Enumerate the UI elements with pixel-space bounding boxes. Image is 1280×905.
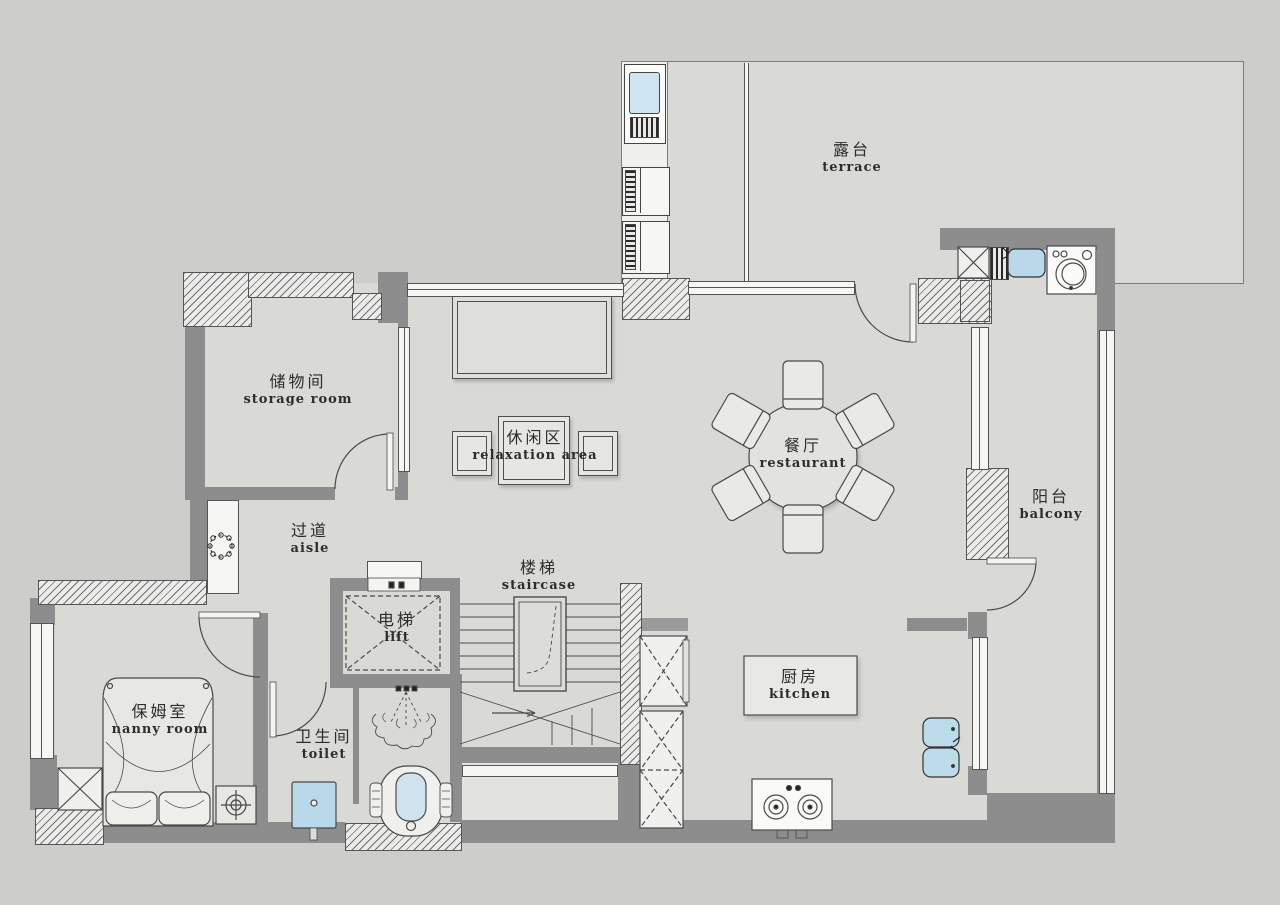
label-terrace-en: terrace — [822, 159, 882, 176]
label-restaurant: 餐厅 restaurant — [759, 436, 846, 472]
label-nanny-zh: 保姆室 — [112, 702, 209, 721]
hatched-wall-nanny-top — [38, 580, 207, 605]
label-relaxation-area: 休闲区 relaxation area — [472, 428, 597, 464]
wall-storage-bottom — [185, 487, 335, 500]
wall-bottom-right — [460, 820, 988, 843]
floor-staircase — [440, 578, 640, 763]
label-nanny-room: 保姆室 nanny room — [112, 702, 209, 738]
hatched-wall-toilet-bottom — [345, 823, 462, 851]
wall-balcony-pier-2 — [968, 766, 987, 795]
wall-balcony-bottom — [987, 793, 1115, 843]
lift-lobby-niche — [367, 561, 422, 579]
floor-plan: 露台 terrace 储物间 storage room 休闲区 relaxati… — [0, 0, 1280, 905]
label-staircase-zh: 楼梯 — [502, 558, 576, 577]
wall-lift-bottom — [330, 674, 460, 688]
label-balcony-en: balcony — [1019, 506, 1082, 523]
hatched-pier-balcony-mid — [966, 468, 1009, 560]
ac-unit-1-divider — [640, 168, 641, 213]
ac-unit-1-vent — [625, 170, 636, 212]
label-toilet-zh: 卫生间 — [295, 727, 352, 746]
label-staircase: 楼梯 staircase — [502, 558, 576, 594]
hatched-wall-living-top-1 — [622, 278, 690, 320]
label-storage-room: 储物间 storage room — [243, 372, 352, 408]
label-balcony: 阳台 balcony — [1019, 487, 1082, 523]
label-lift-zh: 电梯 — [378, 610, 416, 629]
wall-aisle-left — [190, 500, 207, 592]
label-aisle-en: aisle — [291, 540, 330, 557]
wall-balcony-pier-1 — [968, 612, 987, 639]
wall-lift-left — [330, 578, 343, 688]
ac-unit-2-vent — [625, 224, 636, 270]
label-relaxation-zh: 休闲区 — [472, 428, 597, 447]
window-kitchen-balcony — [972, 637, 988, 770]
label-kitchen: 厨房 kitchen — [769, 667, 831, 703]
label-kitchen-en: kitchen — [769, 686, 831, 703]
wall-lift-right — [450, 578, 460, 688]
window-living-top-left — [407, 283, 624, 297]
label-aisle: 过道 aisle — [291, 521, 330, 557]
wall-storage-right-bottom — [398, 468, 408, 500]
ac-unit-2-divider — [640, 222, 641, 271]
floor-kitchen — [622, 618, 988, 830]
label-nanny-en: nanny room — [112, 721, 209, 738]
label-aisle-zh: 过道 — [291, 521, 330, 540]
label-storage-en: storage room — [243, 391, 352, 408]
label-restaurant-zh: 餐厅 — [759, 436, 846, 455]
hatched-wall-storage-corner — [183, 272, 252, 327]
understair-landing — [462, 765, 618, 777]
wall-balcony-top — [940, 228, 1115, 250]
window-living-top-right — [688, 281, 855, 295]
terrace-expansion-joint — [744, 63, 749, 282]
drying-rack — [990, 247, 1009, 280]
kitchen-counter-edge — [638, 618, 688, 631]
wall-lift-top-left — [330, 578, 368, 591]
window-dining-balcony — [971, 327, 989, 470]
label-staircase-en: staircase — [502, 577, 576, 594]
label-terrace-zh: 露台 — [822, 140, 882, 159]
wall-storage-right-top — [398, 294, 408, 329]
wall-stairs-bottom — [460, 747, 620, 763]
label-relaxation-en: relaxation area — [472, 447, 597, 464]
window-balcony-right — [1099, 330, 1115, 794]
label-toilet: 卫生间 toilet — [295, 727, 352, 763]
hatched-wall-storage-top — [248, 272, 354, 298]
hatched-pier-balcony-top — [960, 280, 990, 322]
label-restaurant-en: restaurant — [759, 455, 846, 472]
wall-kitchen-left-bottom — [618, 763, 640, 823]
label-balcony-zh: 阳台 — [1019, 487, 1082, 506]
window-storage-partition — [398, 327, 410, 472]
label-lift-en: lift — [378, 629, 416, 646]
window-nanny-left — [30, 623, 54, 759]
water-heater-grille — [630, 117, 659, 138]
hatched-wall-storage-step — [352, 293, 382, 320]
wall-cabinet — [452, 296, 612, 379]
label-lift: 电梯 lift — [378, 610, 416, 646]
hatched-wall-nanny-corner — [35, 808, 104, 845]
hatched-wall-stairs-kitchen — [620, 583, 642, 765]
label-terrace: 露台 terrace — [822, 140, 882, 176]
wall-nanny-toilet — [253, 613, 268, 843]
wall-dining-kitchen-stub — [907, 618, 967, 631]
label-toilet-en: toilet — [295, 746, 352, 763]
label-storage-zh: 储物间 — [243, 372, 352, 391]
wall-nanny-left-bottom — [30, 755, 57, 810]
niche-aisle — [207, 500, 239, 594]
label-kitchen-zh: 厨房 — [769, 667, 831, 686]
wall-toilet-partition — [353, 686, 359, 804]
water-heater-screen — [629, 72, 660, 114]
